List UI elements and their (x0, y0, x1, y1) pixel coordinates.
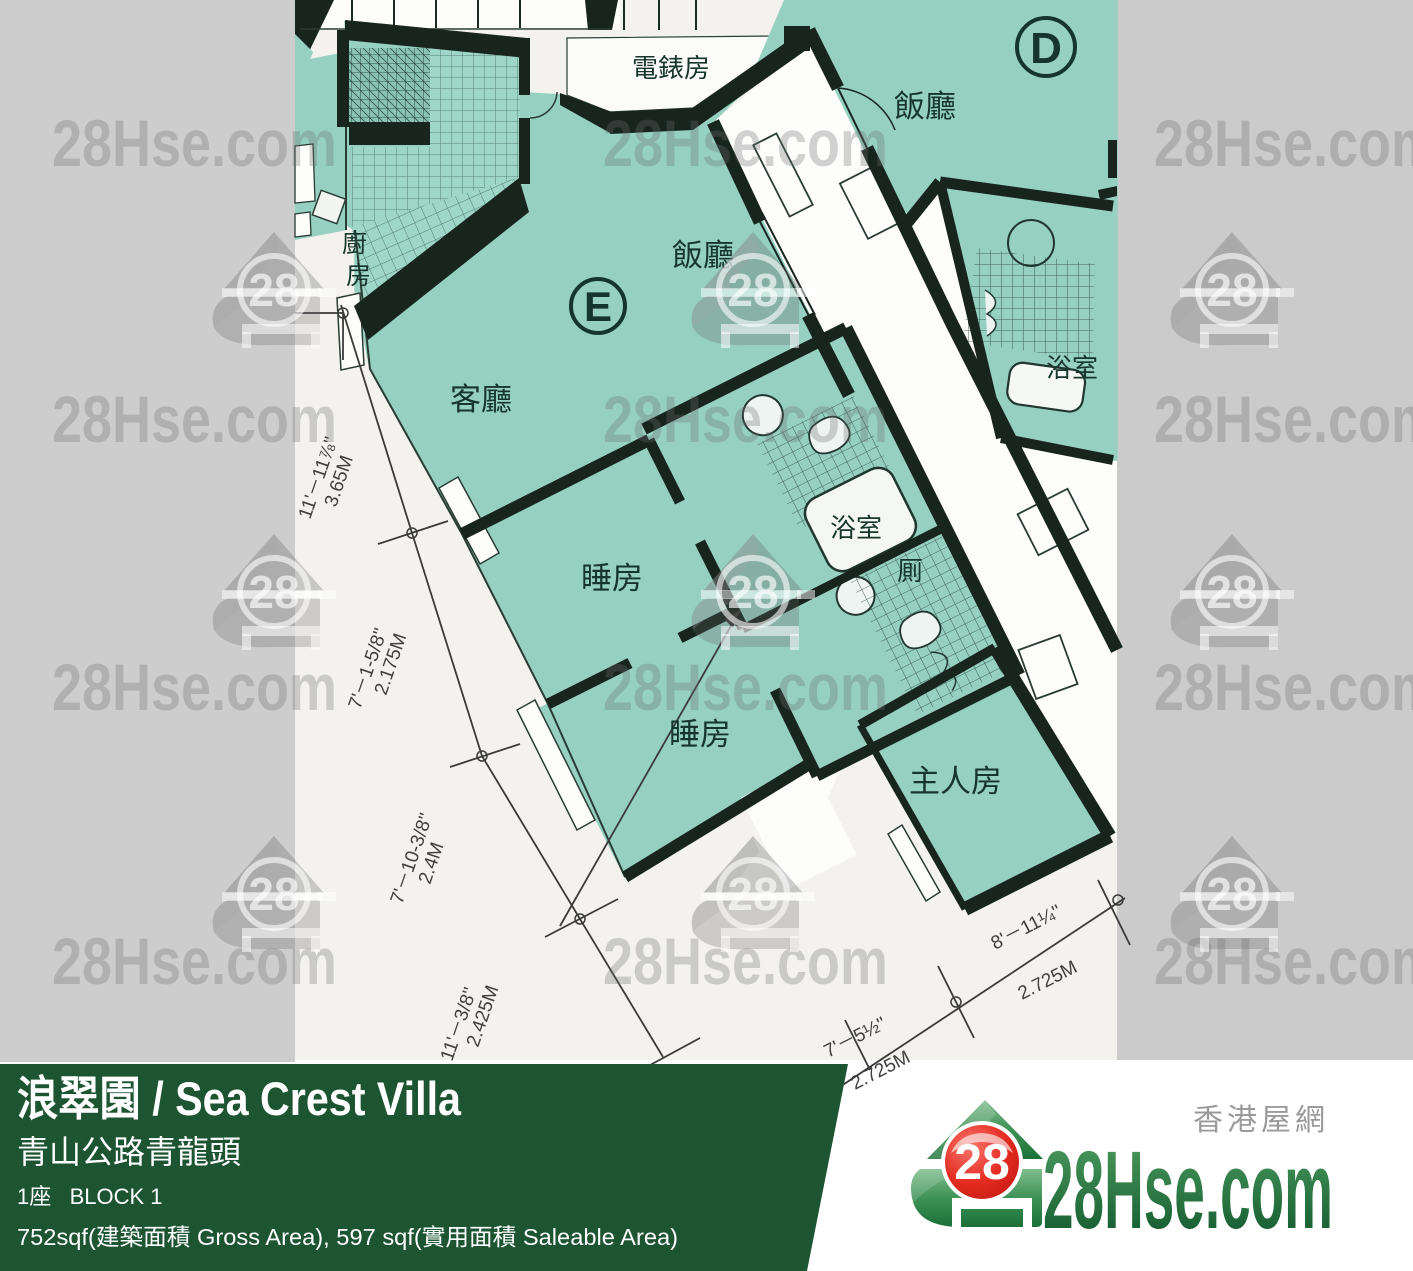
svg-text:電錶房: 電錶房 (632, 53, 710, 83)
svg-text:1座 BLOCK 1: 1座 BLOCK 1 (17, 1184, 163, 1209)
svg-text:浪翠園 / Sea Crest Villa: 浪翠園 / Sea Crest Villa (17, 1072, 462, 1125)
svg-text:主人房: 主人房 (909, 764, 1002, 799)
svg-text:浴室: 浴室 (830, 513, 882, 543)
svg-text:厠: 厠 (897, 556, 923, 586)
svg-text:752sqf(建築面積 Gross Area), 597 s: 752sqf(建築面積 Gross Area), 597 sqf(實用面積 Sa… (17, 1224, 678, 1250)
svg-text:D: D (1030, 24, 1062, 73)
svg-text:浴室: 浴室 (1046, 353, 1098, 383)
svg-text:香港屋網: 香港屋網 (1193, 1104, 1329, 1137)
svg-text:房: 房 (346, 262, 371, 290)
svg-text:28Hse.com: 28Hse.com (1043, 1129, 1333, 1252)
svg-text:E: E (584, 283, 612, 330)
svg-text:睡房: 睡房 (581, 561, 643, 596)
svg-text:客廳: 客廳 (450, 382, 512, 417)
svg-text:青山公路青龍頭: 青山公路青龍頭 (17, 1134, 241, 1170)
svg-text:28: 28 (954, 1134, 1010, 1190)
svg-text:廚: 廚 (342, 230, 367, 258)
svg-text:飯廳: 飯廳 (894, 89, 956, 124)
